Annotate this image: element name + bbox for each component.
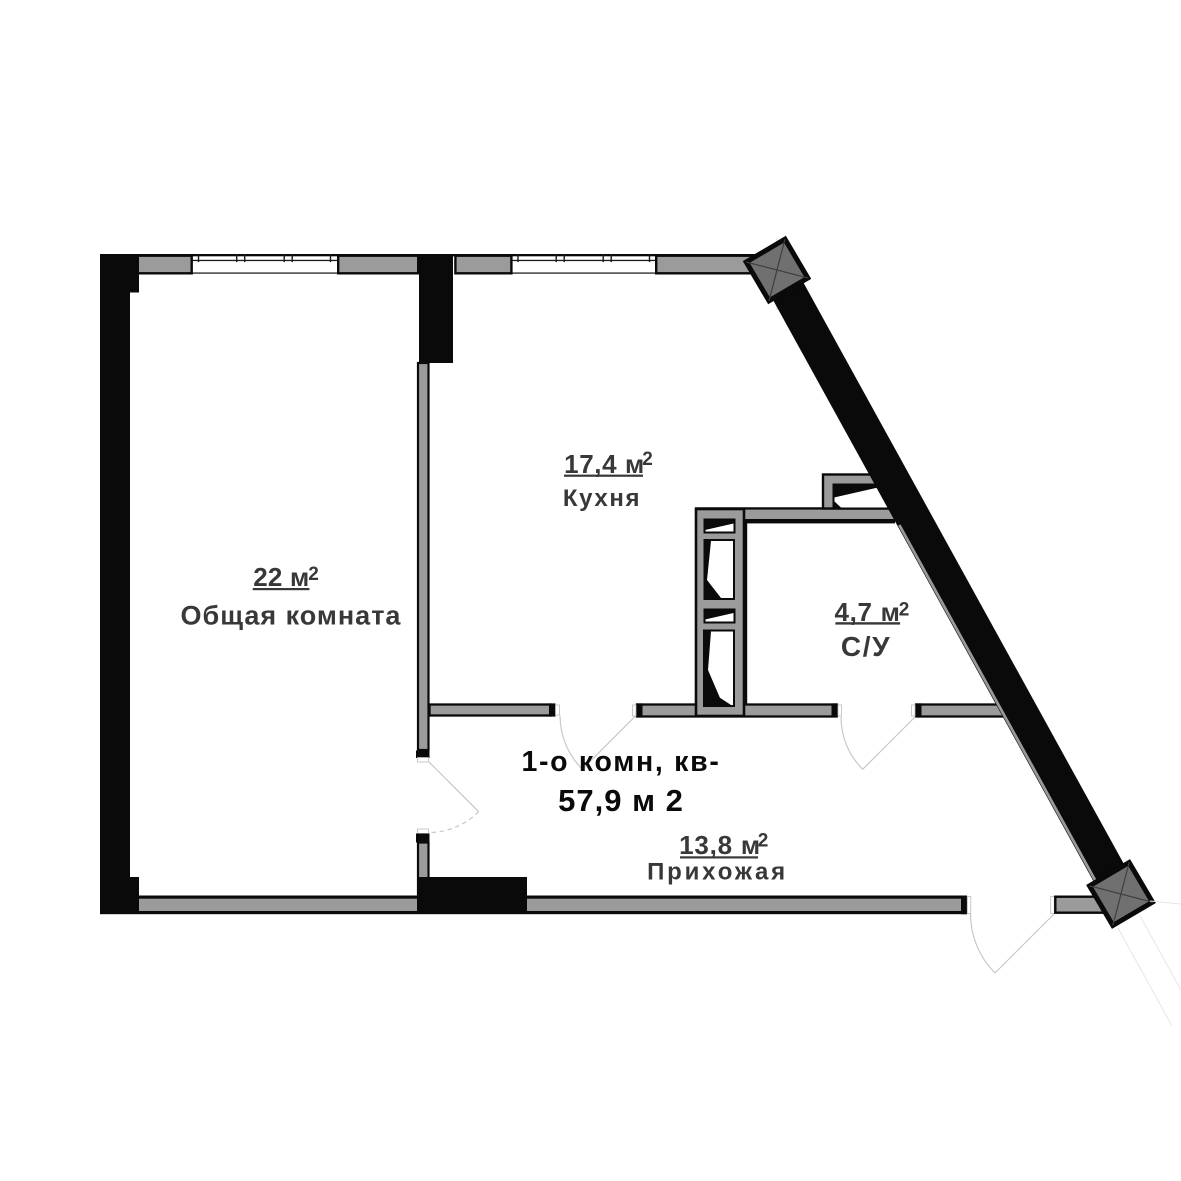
svg-text:2: 2 <box>642 449 653 470</box>
svg-text:17,4 м: 17,4 м <box>564 449 645 479</box>
svg-text:57,9 м 2: 57,9 м 2 <box>558 783 684 818</box>
svg-text:С/У: С/У <box>841 631 891 662</box>
svg-text:13,8 м: 13,8 м <box>679 830 761 860</box>
svg-text:2: 2 <box>758 831 769 852</box>
svg-text:Прихожая: Прихожая <box>647 859 788 886</box>
svg-text:2: 2 <box>899 600 910 621</box>
svg-text:22 м: 22 м <box>253 562 309 592</box>
svg-text:Кухня: Кухня <box>563 485 641 512</box>
svg-text:Общая комната: Общая комната <box>181 601 402 631</box>
svg-text:1-о комн, кв-: 1-о комн, кв- <box>521 746 720 778</box>
svg-text:2: 2 <box>308 564 319 585</box>
